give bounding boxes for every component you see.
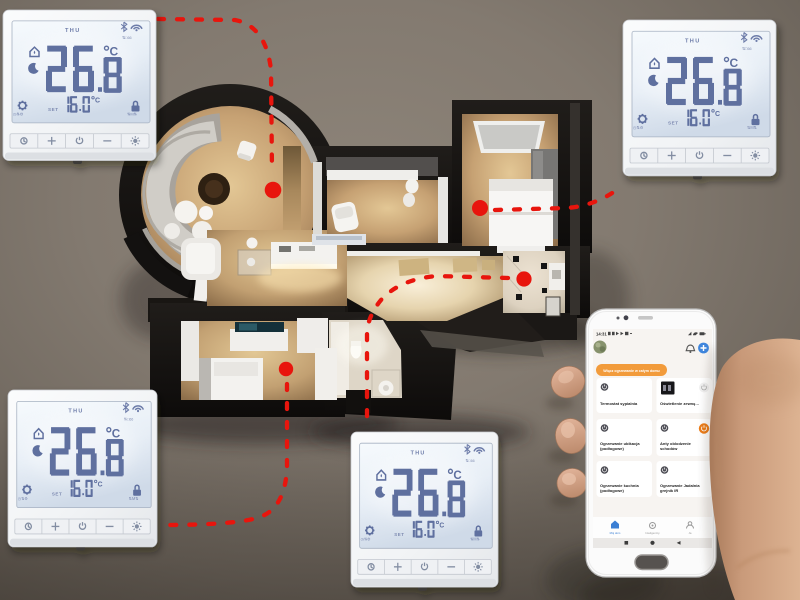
- svg-text:Termostat sypialnia: Termostat sypialnia: [600, 401, 638, 406]
- svg-text:Mój dom: Mój dom: [610, 531, 621, 535]
- svg-text:Włącz ogrzewanie w całym domu: Włącz ogrzewanie w całym domu: [603, 369, 660, 373]
- svg-text:Oświetlenie zewnę…: Oświetlenie zewnę…: [660, 401, 699, 406]
- svg-text:Ja: Ja: [689, 531, 692, 535]
- svg-text:(podłogowe): (podłogowe): [600, 446, 624, 451]
- svg-text:grejnik IR: grejnik IR: [660, 488, 678, 493]
- svg-text:Inteligentny: Inteligentny: [645, 531, 660, 535]
- svg-text:14:31: 14:31: [596, 332, 607, 337]
- svg-text:(podłogowe): (podłogowe): [600, 488, 624, 493]
- svg-text:schodów: schodów: [660, 446, 678, 451]
